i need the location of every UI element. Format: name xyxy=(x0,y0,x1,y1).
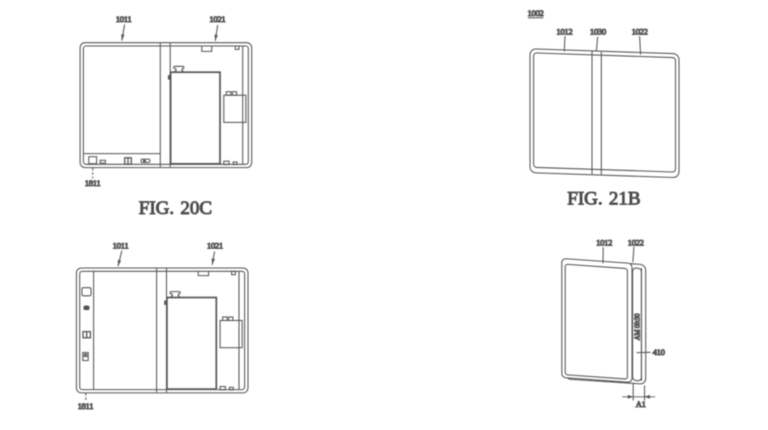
svg-text:1022: 1022 xyxy=(632,26,648,36)
svg-text:1012: 1012 xyxy=(556,26,572,36)
svg-text:1021: 1021 xyxy=(207,240,223,250)
svg-text:1811: 1811 xyxy=(78,401,94,411)
svg-text:FIG. 21B: FIG. 21B xyxy=(567,188,640,209)
svg-text:A1: A1 xyxy=(636,399,646,409)
svg-text:1030: 1030 xyxy=(590,26,606,36)
svg-text:AM 09:30: AM 09:30 xyxy=(635,313,642,340)
svg-text:FIG. 20C: FIG. 20C xyxy=(139,198,212,219)
svg-text:1022: 1022 xyxy=(628,238,644,248)
svg-text:1012: 1012 xyxy=(596,238,612,248)
svg-text:1021: 1021 xyxy=(209,14,225,24)
svg-text:1011: 1011 xyxy=(113,240,129,250)
svg-text:1002: 1002 xyxy=(528,8,544,18)
svg-text:1011: 1011 xyxy=(116,14,132,24)
svg-text:1811: 1811 xyxy=(85,178,101,188)
svg-text:410: 410 xyxy=(653,347,665,357)
